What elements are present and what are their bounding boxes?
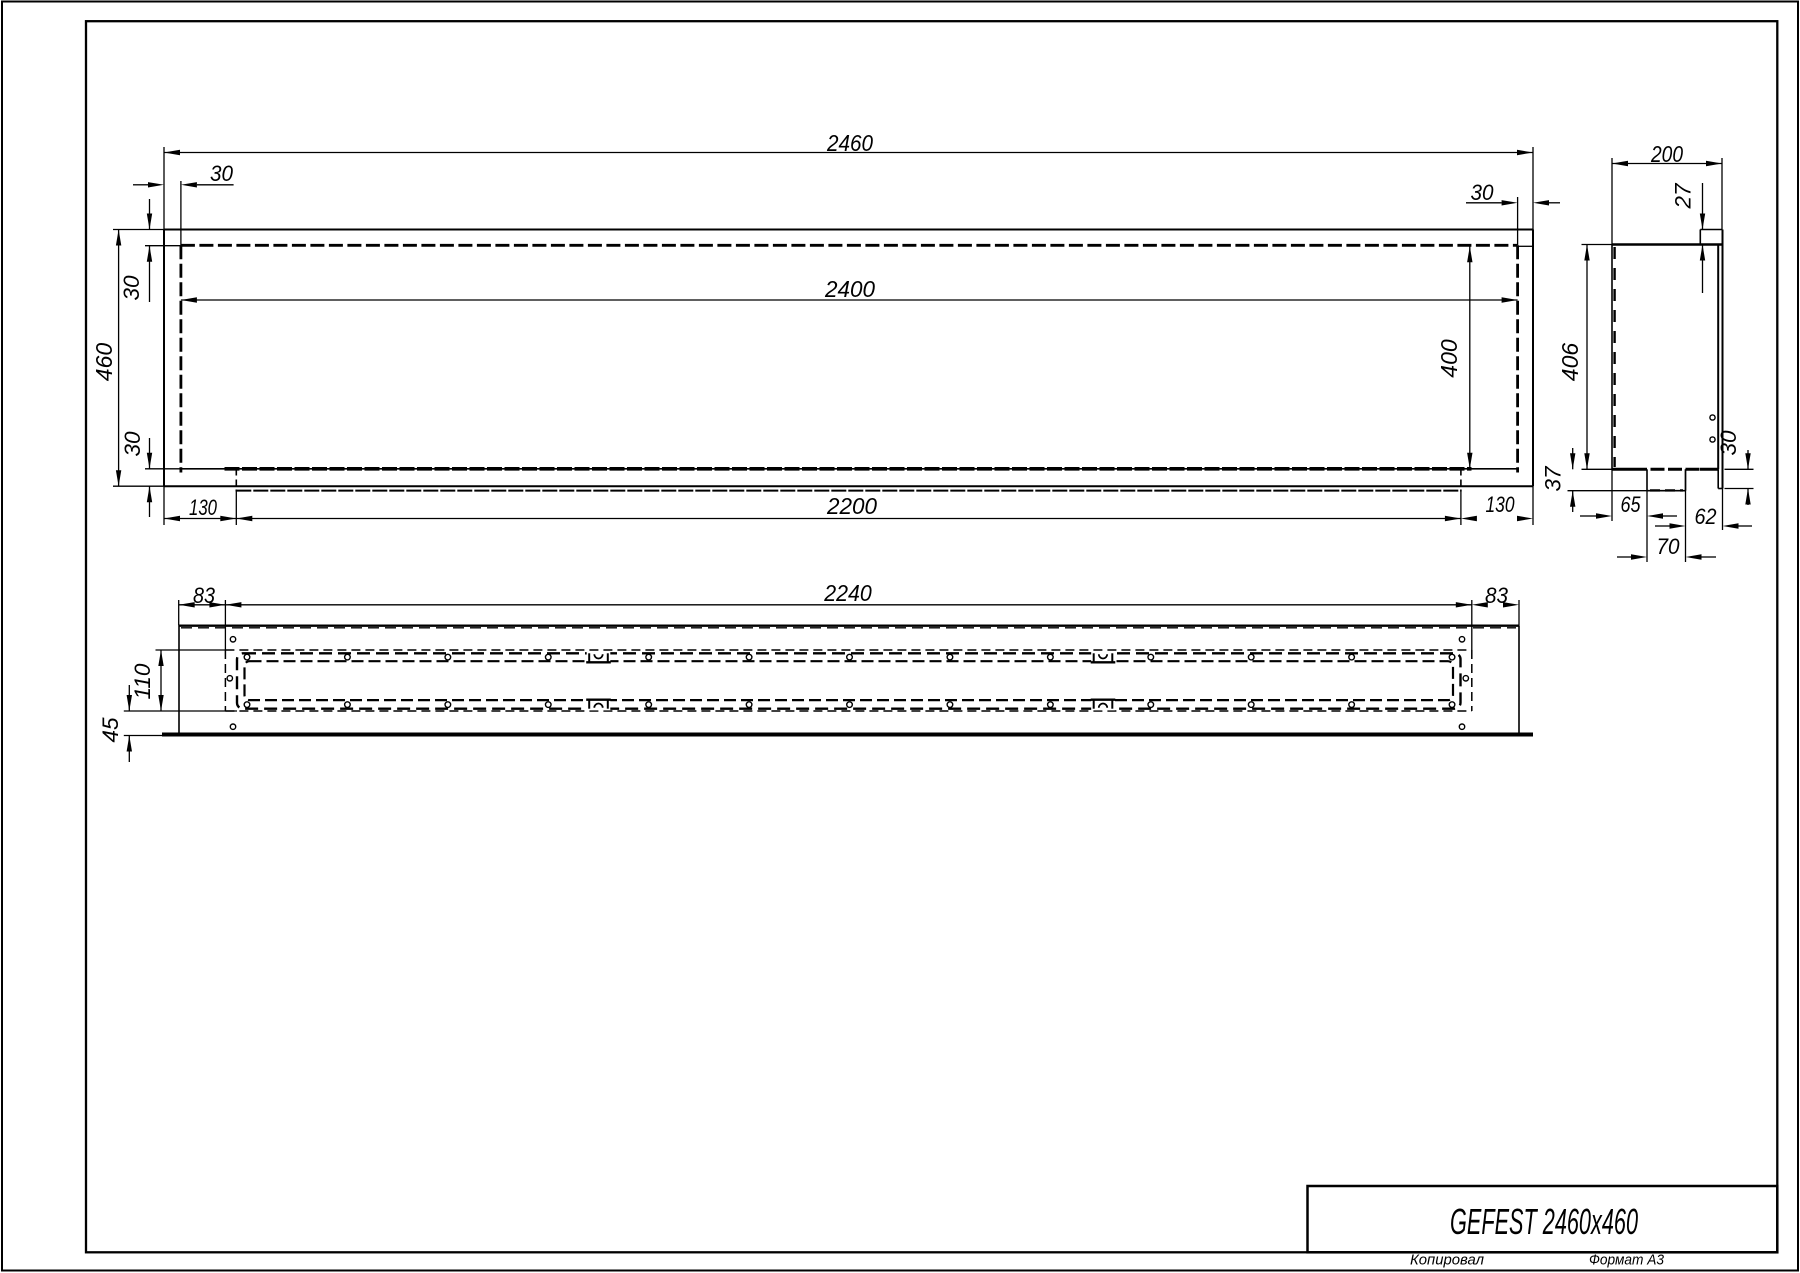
svg-text:62: 62 <box>1695 504 1717 529</box>
svg-text:130: 130 <box>189 495 217 520</box>
svg-text:460: 460 <box>91 343 117 382</box>
svg-text:30: 30 <box>1716 430 1741 456</box>
svg-text:GEFEST 2460x460: GEFEST 2460x460 <box>1450 1201 1638 1242</box>
svg-text:37: 37 <box>1541 465 1566 492</box>
svg-text:65: 65 <box>1621 492 1641 517</box>
svg-text:27: 27 <box>1671 182 1696 210</box>
svg-text:2200: 2200 <box>826 493 877 519</box>
svg-text:130: 130 <box>1486 492 1515 517</box>
svg-text:406: 406 <box>1557 343 1583 382</box>
svg-text:2460: 2460 <box>826 130 873 156</box>
svg-text:400: 400 <box>1436 339 1462 378</box>
svg-text:2400: 2400 <box>824 276 875 302</box>
svg-text:70: 70 <box>1657 534 1680 559</box>
svg-text:Формат А3: Формат А3 <box>1589 1253 1664 1269</box>
svg-text:200: 200 <box>1650 141 1683 167</box>
svg-text:30: 30 <box>1471 180 1494 205</box>
svg-text:30: 30 <box>120 431 145 457</box>
svg-text:45: 45 <box>98 717 123 743</box>
svg-text:83: 83 <box>193 583 215 608</box>
svg-text:110: 110 <box>130 663 155 699</box>
svg-text:30: 30 <box>119 275 144 301</box>
svg-text:30: 30 <box>210 161 233 186</box>
svg-text:Копировал: Копировал <box>1410 1253 1484 1269</box>
svg-text:83: 83 <box>1485 583 1508 608</box>
svg-text:2240: 2240 <box>823 580 872 606</box>
